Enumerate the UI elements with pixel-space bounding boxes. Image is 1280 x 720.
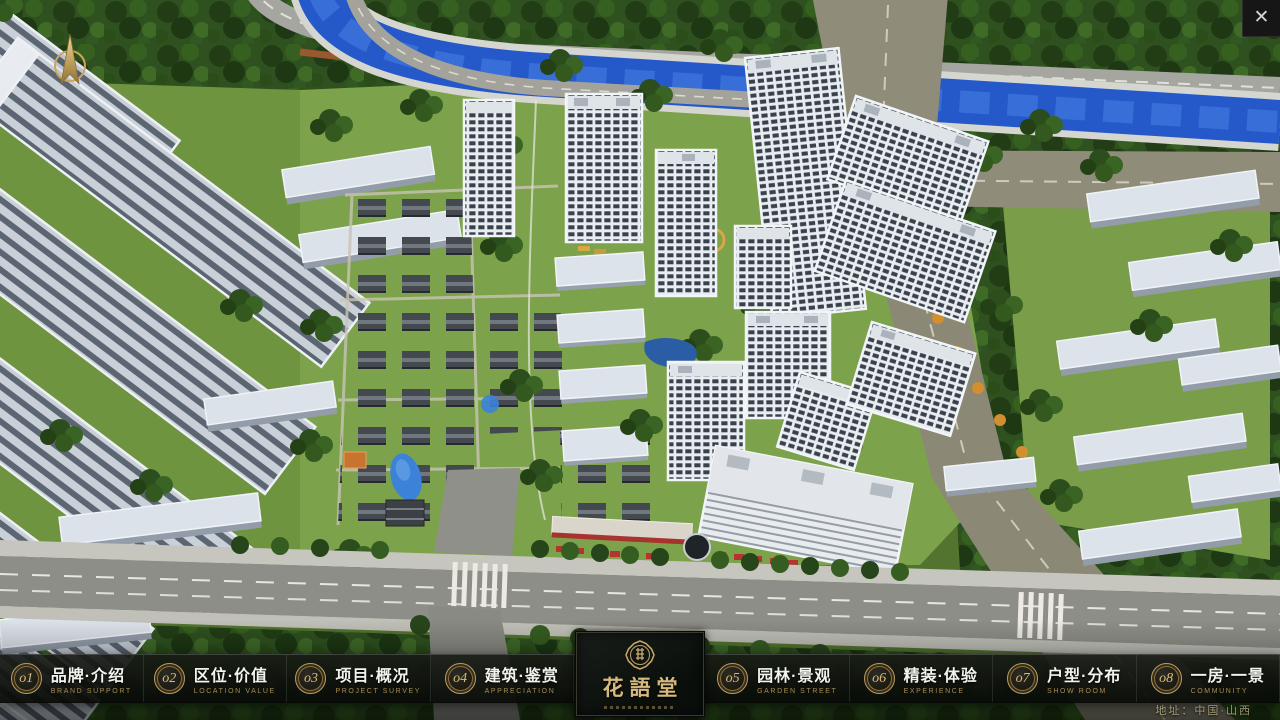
seal-emblem-icon (625, 640, 655, 670)
nav-item-interior[interactable]: o6 精装·体验 EXPERIENCE (850, 655, 994, 702)
nav-item-location[interactable]: o2 区位·价值 LOCATION VALUE (144, 655, 288, 702)
nav-group-right: o5 园林·景观 GARDEN STREET o6 精装·体验 EXPERIEN… (706, 655, 1280, 702)
nav-label-zh: 品牌·介绍 (51, 662, 125, 686)
nav-item-project[interactable]: o3 项目·概况 PROJECT SURVEY (287, 655, 431, 702)
nav-badge: o4 (445, 663, 476, 694)
nav-badge: o7 (1007, 663, 1038, 694)
nav-label-en: GARDEN STREET (757, 688, 837, 695)
nav-badge: o5 (717, 663, 748, 694)
nav-item-floorplan[interactable]: o7 户型·分布 SHOW ROOM (993, 655, 1137, 702)
nav-badge: o1 (11, 663, 42, 694)
nav-label-en: LOCATION VALUE (194, 688, 276, 695)
nav-label-en: EXPERIENCE (904, 688, 965, 695)
close-button[interactable]: ✕ (1242, 0, 1280, 37)
nav-label-en: SHOW ROOM (1047, 688, 1107, 695)
nav-badge: o3 (295, 663, 326, 694)
close-icon: ✕ (1254, 7, 1270, 28)
nav-label-zh: 项目·概况 (335, 662, 409, 686)
nav-group-left: o1 品牌·介绍 BRAND SUPPORT o2 区位·价值 LOCATION… (0, 655, 574, 702)
nav-badge: o6 (864, 663, 895, 694)
nav-label-en: COMMUNITY (1191, 688, 1249, 695)
nav-label-en: PROJECT SURVEY (335, 688, 421, 695)
nav-item-brand[interactable]: o1 品牌·介绍 BRAND SUPPORT (0, 655, 144, 702)
project-address: 地址：中国·山西 (1155, 702, 1252, 718)
masterplan-3d-view[interactable] (0, 0, 1280, 720)
nav-item-architecture[interactable]: o4 建筑·鉴赏 APPRECIATION (431, 655, 575, 702)
nav-label-zh: 一房·一景 (1191, 662, 1265, 686)
nav-item-community[interactable]: o8 一房·一景 COMMUNITY (1137, 655, 1280, 702)
logo-subtitle-line (604, 706, 676, 709)
nav-badge: o8 (1151, 663, 1182, 694)
nav-label-zh: 建筑·鉴赏 (485, 662, 559, 686)
nav-label-zh: 园林·景观 (757, 662, 831, 686)
nav-badge: o2 (154, 663, 185, 694)
project-logo-title: 花語堂 (597, 672, 684, 702)
nav-item-garden[interactable]: o5 园林·景观 GARDEN STREET (706, 655, 850, 702)
nav-label-en: BRAND SUPPORT (51, 688, 132, 695)
presentation-window: ✕ o1 品牌·介绍 BRAND SUPPORT o2 区位·价值 LOCATI… (0, 0, 1280, 720)
nav-label-zh: 精装·体验 (904, 662, 978, 686)
nav-label-en: APPRECIATION (485, 688, 556, 695)
nav-label-zh: 区位·价值 (194, 662, 268, 686)
project-logo-panel[interactable]: 花語堂 (575, 631, 705, 717)
nav-label-zh: 户型·分布 (1047, 662, 1121, 686)
